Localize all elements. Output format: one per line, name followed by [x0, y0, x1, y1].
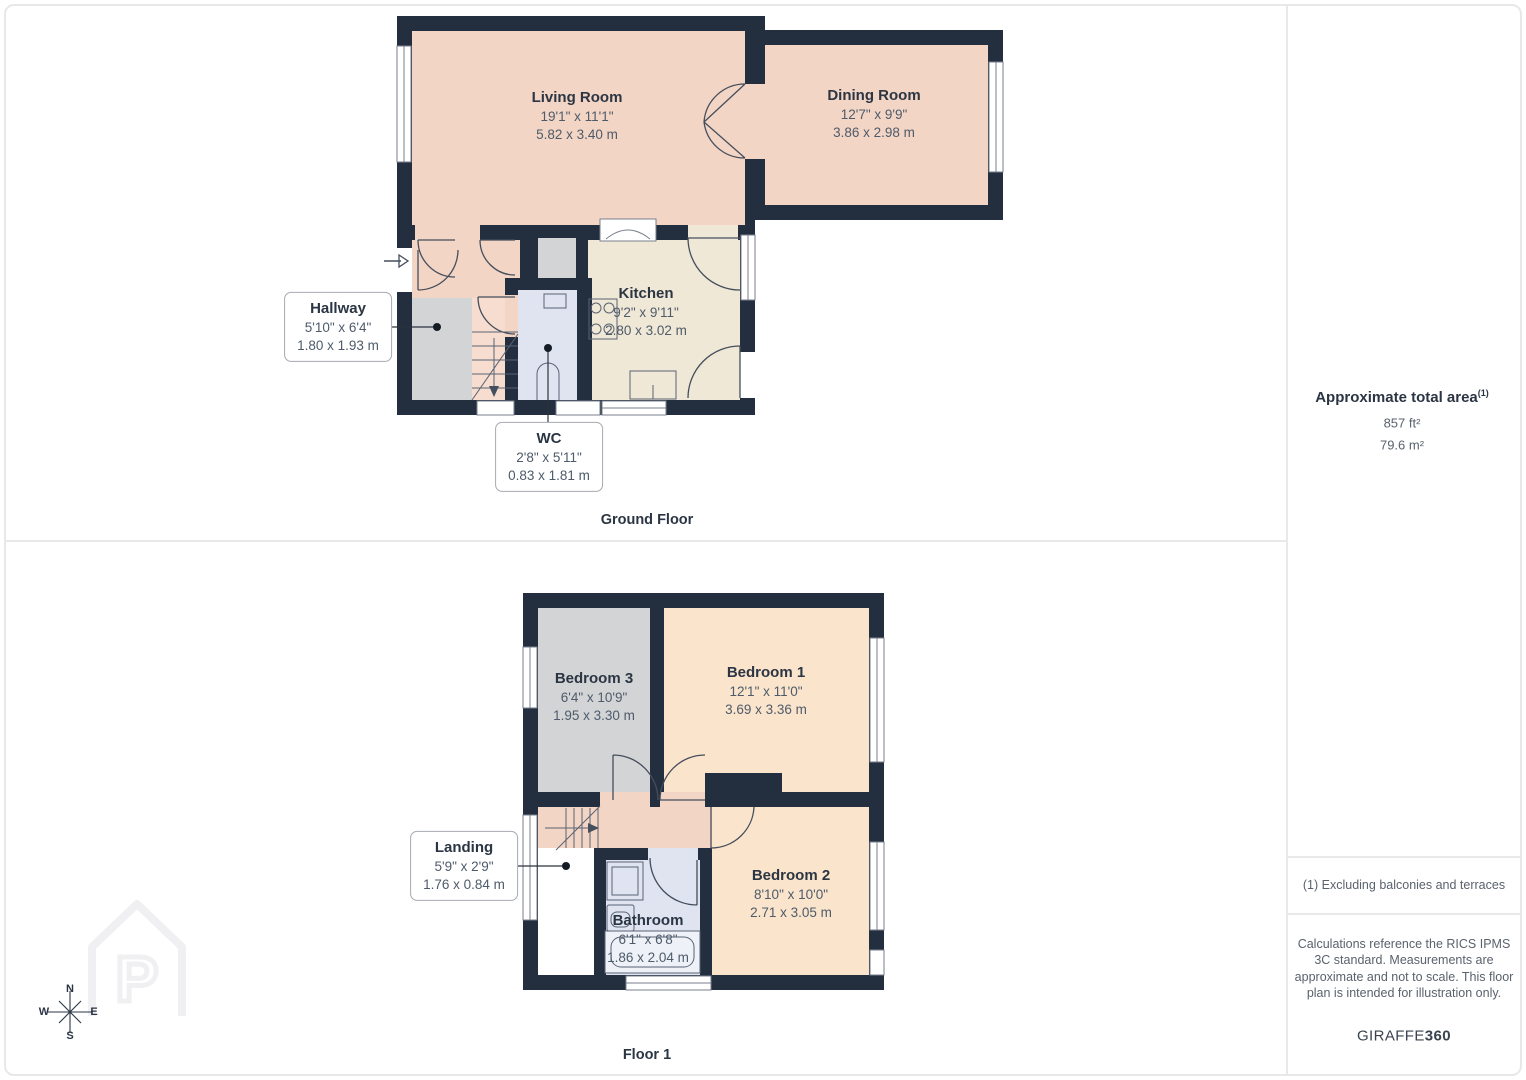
window: [477, 401, 514, 415]
footnote-marker: (1): [1478, 388, 1489, 398]
kitchen-label: Kitchen 9'2" x 9'11" 2.80 x 3.02 m: [605, 284, 687, 340]
window: [556, 401, 600, 415]
ground-floor-plan: [384, 16, 1003, 428]
room-size-imperial: 6'1" x 6'8": [607, 931, 689, 949]
room-size-metric: 3.86 x 2.98 m: [827, 124, 920, 142]
bedroom-2-label: Bedroom 2 8'10" x 10'0" 2.71 x 3.05 m: [750, 866, 832, 922]
living-room-label: Living Room 19'1" x 11'1" 5.82 x 3.40 m: [532, 88, 623, 144]
total-area-title-text: Approximate total area: [1315, 389, 1478, 406]
total-area-m: 79.6 m²: [1380, 438, 1424, 453]
chimney-breast: [705, 773, 782, 807]
watermark-logo: P: [92, 904, 182, 1016]
dining-room-label: Dining Room 12'7" x 9'9" 3.86 x 2.98 m: [827, 86, 920, 142]
compass-icon: [47, 991, 93, 1033]
room-name: Kitchen: [605, 284, 687, 304]
brand-name: GIRAFFE: [1357, 1028, 1425, 1045]
ground-floor-caption: Ground Floor: [601, 512, 694, 528]
floor-1-caption: Floor 1: [623, 1047, 671, 1063]
window: [870, 950, 884, 975]
compass-west-label: W: [39, 1006, 49, 1018]
room-name: WC: [508, 429, 590, 449]
wc-callout: WC 2'8" x 5'11" 0.83 x 1.81 m: [495, 422, 603, 492]
hallway-callout: Hallway 5'10" x 6'4" 1.80 x 1.93 m: [284, 292, 392, 362]
hallway-gray-area: [412, 298, 472, 400]
room-name: Bathroom: [607, 911, 689, 931]
bedroom-1-label: Bedroom 1 12'1" x 11'0" 3.69 x 3.36 m: [725, 663, 807, 719]
compass-north-label: N: [66, 983, 74, 995]
room-name: Living Room: [532, 88, 623, 108]
room-size-metric: 1.76 x 0.84 m: [423, 876, 505, 894]
room-size-imperial: 19'1" x 11'1": [532, 108, 623, 126]
sidebar-disclaimer-divider: [1288, 913, 1522, 915]
room-name: Bedroom 2: [750, 866, 832, 886]
room-size-metric: 3.69 x 3.36 m: [725, 701, 807, 719]
first-floor-plan: [514, 593, 884, 990]
giraffe360-logo: GIRAFFE360: [1357, 1028, 1451, 1045]
room-name: Bedroom 3: [553, 669, 635, 689]
room-size-imperial: 6'4" x 10'9": [553, 689, 635, 707]
room-size-imperial: 5'9" x 2'9": [423, 858, 505, 876]
room-size-metric: 1.86 x 2.04 m: [607, 949, 689, 967]
room-size-metric: 2.80 x 3.02 m: [605, 322, 687, 340]
room-size-metric: 0.83 x 1.81 m: [508, 467, 590, 485]
room-size-imperial: 12'7" x 9'9": [827, 106, 920, 124]
bathroom-label: Bathroom 6'1" x 6'8" 1.86 x 2.04 m: [607, 911, 689, 967]
compass-east-label: E: [90, 1006, 97, 1018]
room-name: Bedroom 1: [725, 663, 807, 683]
floor-plan-page: P: [0, 0, 1526, 1080]
sidebar-divider: [1286, 4, 1288, 1076]
room-size-metric: 1.80 x 1.93 m: [297, 337, 379, 355]
room-name: Hallway: [297, 299, 379, 319]
area-footnote: (1) Excluding balconies and terraces: [1284, 877, 1524, 893]
brand-suffix: 360: [1425, 1028, 1451, 1045]
total-area-ft: 857 ft²: [1384, 416, 1421, 431]
room-size-imperial: 12'1" x 11'0": [725, 683, 807, 701]
room-size-metric: 1.95 x 3.30 m: [553, 707, 635, 725]
sidebar-footnote-divider: [1288, 856, 1522, 858]
hallway-area: [412, 240, 520, 305]
landing-callout: Landing 5'9" x 2'9" 1.76 x 0.84 m: [410, 831, 518, 901]
svg-text:P: P: [116, 943, 159, 1015]
room-size-metric: 2.71 x 3.05 m: [750, 904, 832, 922]
compass-south-label: S: [66, 1030, 73, 1042]
room-size-imperial: 8'10" x 10'0": [750, 886, 832, 904]
bedroom-3-label: Bedroom 3 6'4" x 10'9" 1.95 x 3.30 m: [553, 669, 635, 725]
floor-section-divider: [4, 540, 1287, 542]
total-area-title: Approximate total area(1): [1315, 388, 1489, 406]
room-name: Landing: [423, 838, 505, 858]
room-size-imperial: 2'8" x 5'11": [508, 449, 590, 467]
room-size-imperial: 9'2" x 9'11": [605, 304, 687, 322]
room-size-metric: 5.82 x 3.40 m: [532, 126, 623, 144]
room-name: Dining Room: [827, 86, 920, 106]
disclaimer-text: Calculations reference the RICS IPMS 3C …: [1290, 936, 1518, 1001]
fireplace-alcove: [600, 219, 656, 241]
room-size-imperial: 5'10" x 6'4": [297, 319, 379, 337]
